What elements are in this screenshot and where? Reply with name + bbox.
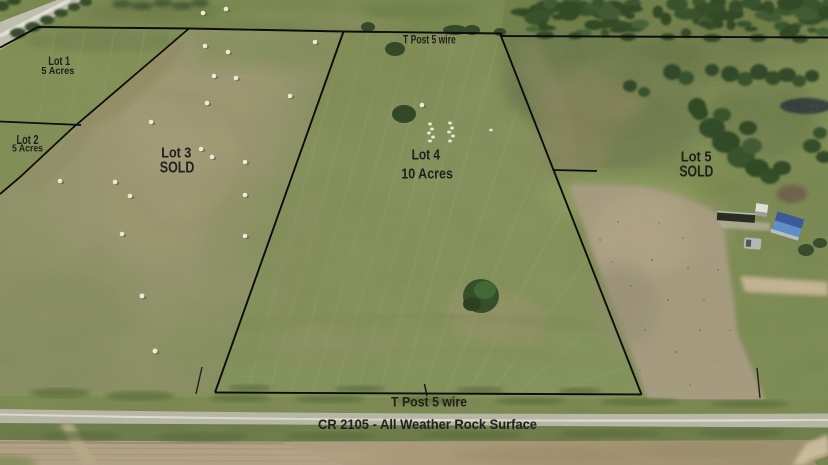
svg-text:10 Acres: 10 Acres bbox=[401, 166, 453, 182]
svg-text:SOLD: SOLD bbox=[160, 159, 195, 176]
svg-text:T Post 5 wire: T Post 5 wire bbox=[403, 35, 456, 47]
svg-text:SOLD: SOLD bbox=[679, 164, 713, 181]
svg-text:Lot 4: Lot 4 bbox=[412, 148, 440, 164]
svg-text:CR 2105 - All Weather Rock Sur: CR 2105 - All Weather Rock Surface bbox=[318, 416, 537, 432]
svg-text:5 Acres: 5 Acres bbox=[41, 65, 74, 77]
svg-text:5 Acres: 5 Acres bbox=[12, 142, 43, 154]
svg-text:T Post 5 wire: T Post 5 wire bbox=[391, 394, 467, 409]
